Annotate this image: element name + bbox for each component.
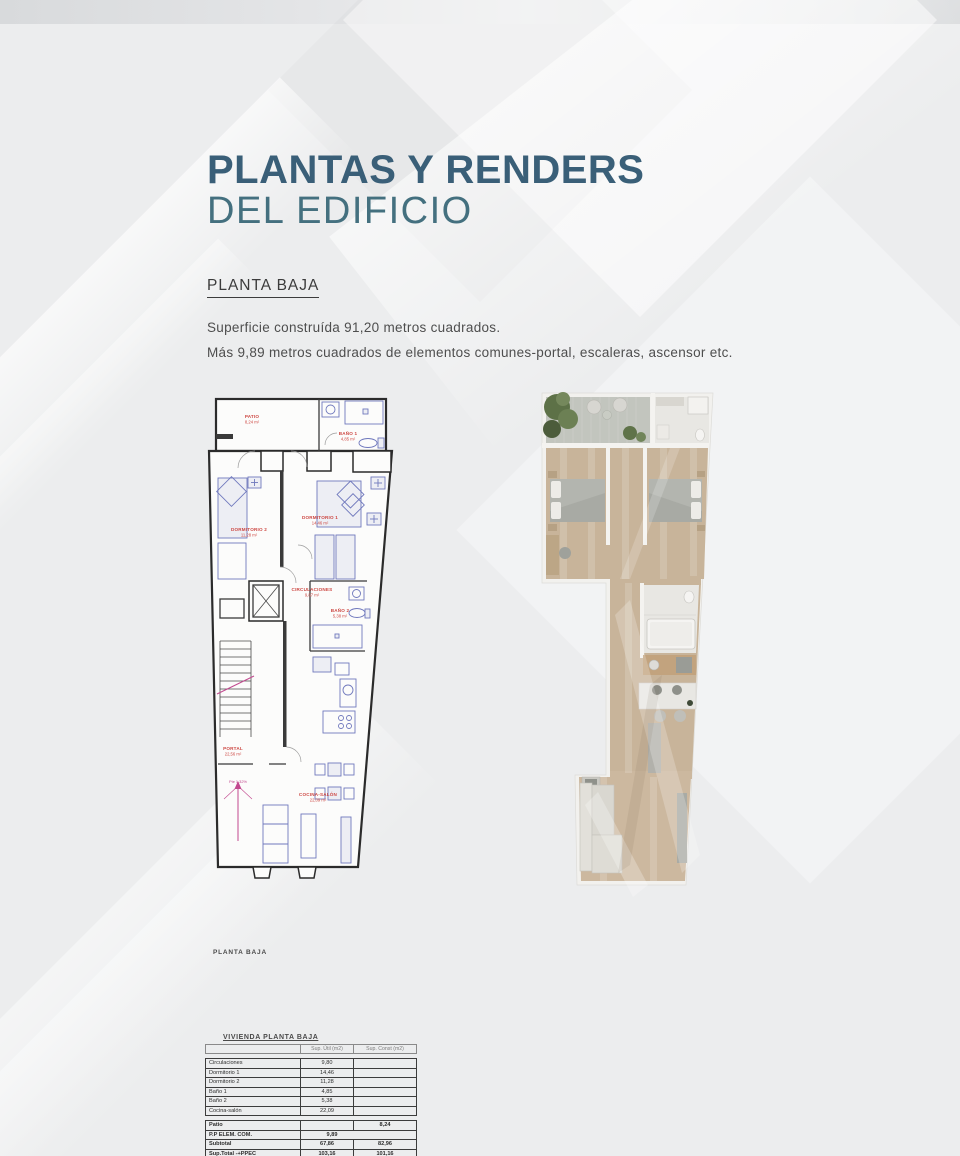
svg-text:8,24 m²: 8,24 m² bbox=[245, 420, 260, 425]
svg-text:22,56 m²: 22,56 m² bbox=[225, 752, 242, 757]
table-totals: Patio8,24 P.P ELEM. COM.9,89 Subtotal67,… bbox=[205, 1120, 417, 1156]
svg-text:5,38 m²: 5,38 m² bbox=[333, 614, 348, 619]
table-row: Dormitorio 114,46 bbox=[206, 1068, 417, 1078]
plan-walls bbox=[209, 399, 392, 878]
ramp-label: Pte 1,32% bbox=[229, 779, 247, 784]
table-row: Dormitorio 211,28 bbox=[206, 1078, 417, 1088]
svg-text:4,85 m²: 4,85 m² bbox=[341, 437, 356, 442]
table-row: Cocina-salón22,09 bbox=[206, 1106, 417, 1116]
portal-label: PORTAL bbox=[223, 746, 243, 751]
surface-paragraph: Superficie construída 91,20 metros cuadr… bbox=[207, 319, 739, 338]
surface-table-block: VIVIENDA PLANTA BAJA Sup. Útil (m2) Sup.… bbox=[205, 1034, 397, 1156]
plan-caption: PLANTA BAJA bbox=[213, 949, 267, 956]
page-title: PLANTAS Y RENDERS bbox=[207, 150, 644, 190]
circulaciones-label: CIRCULACIONES bbox=[292, 587, 333, 592]
table-header: Sup. Útil (m2) Sup. Const (m2) bbox=[205, 1044, 417, 1054]
table-row: Patio8,24 bbox=[206, 1121, 417, 1131]
dorm2-label: DORMITORIO 2 bbox=[231, 527, 267, 532]
render-top-view bbox=[530, 385, 745, 965]
floor-plan-drawing: PATIO 8,24 m² BAÑO 1 4,85 m² DORMITORIO … bbox=[195, 385, 410, 965]
table-row: Baño 14,85 bbox=[206, 1087, 417, 1097]
section-heading: PLANTA BAJA bbox=[207, 277, 319, 298]
bano2-label: BAÑO 2 bbox=[331, 607, 350, 613]
table-row: Sup.Total -+PPEC103,16101,16 bbox=[206, 1149, 417, 1156]
bano1-label: BAÑO 1 bbox=[339, 430, 358, 436]
table-title: VIVIENDA PLANTA BAJA bbox=[223, 1034, 397, 1041]
svg-text:9,87 m²: 9,87 m² bbox=[305, 593, 320, 598]
svg-text:14,46 m²: 14,46 m² bbox=[312, 521, 329, 526]
top-gray-band bbox=[0, 0, 960, 24]
svg-text:22,09 m²: 22,09 m² bbox=[310, 798, 327, 803]
page-subtitle: DEL EDIFICIO bbox=[207, 192, 473, 230]
table-rooms: Circulaciones9,80 Dormitorio 114,46 Dorm… bbox=[205, 1058, 417, 1116]
table-row: Circulaciones9,80 bbox=[206, 1059, 417, 1069]
brochure-page: PLANTAS Y RENDERS DEL EDIFICIO PLANTA BA… bbox=[0, 0, 960, 1156]
dorm1-label: DORMITORIO 1 bbox=[302, 515, 338, 520]
table-row: Subtotal67,8682,96 bbox=[206, 1140, 417, 1150]
table-row: Baño 25,38 bbox=[206, 1097, 417, 1107]
common-elements-paragraph: Más 9,89 metros cuadrados de elementos c… bbox=[207, 344, 739, 363]
header-sup-util: Sup. Útil (m2) bbox=[301, 1045, 354, 1054]
cocina-label: COCINA-SALÓN bbox=[299, 790, 338, 797]
patio-label: PATIO bbox=[245, 414, 260, 419]
header-sup-const: Sup. Const (m2) bbox=[354, 1045, 417, 1054]
svg-text:11,28 m²: 11,28 m² bbox=[241, 533, 258, 538]
table-row: P.P ELEM. COM.9,89 bbox=[206, 1130, 417, 1140]
